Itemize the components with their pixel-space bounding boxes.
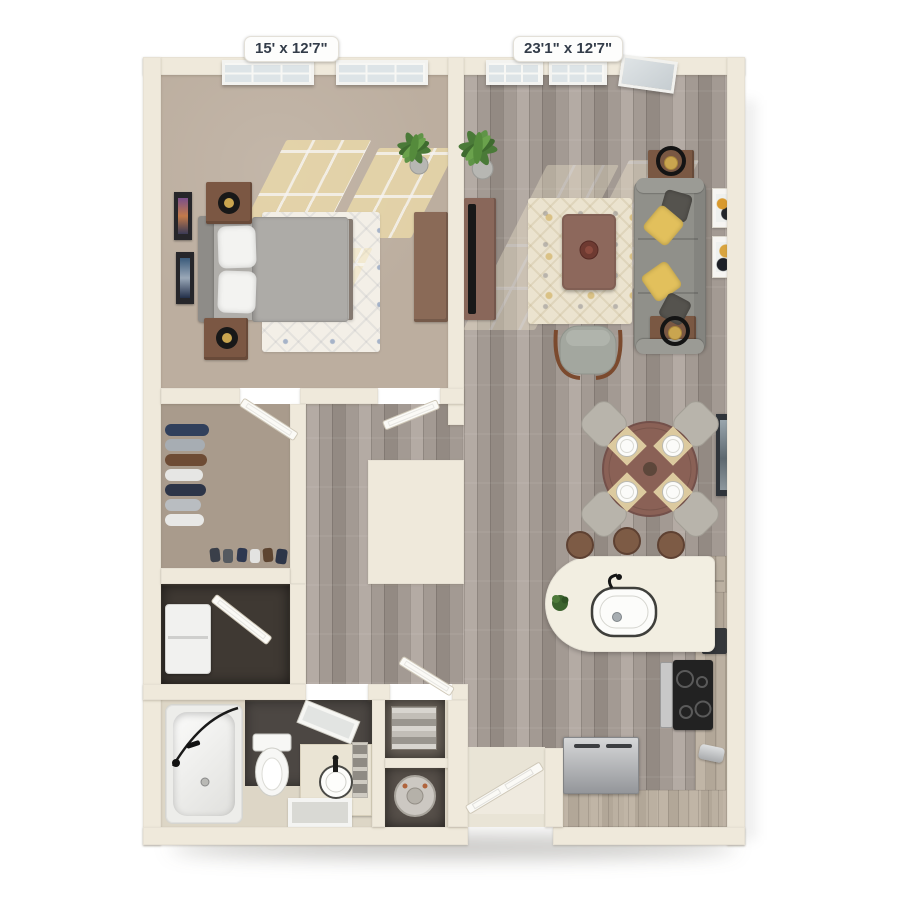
wall-bedroom-south [300, 388, 378, 404]
wall-bathroom-north [368, 684, 390, 700]
plan-side-shadow [744, 100, 760, 840]
floor-plan-stage: 15' x 12'7" 23'1" x 12'7" [0, 0, 900, 900]
wall-bathroom-north [143, 684, 306, 700]
washer-door-seam [168, 636, 208, 639]
hanging-clothes [165, 424, 209, 436]
coffee-table [562, 214, 616, 290]
washer-dryer [165, 604, 211, 674]
wall-closet-east [290, 404, 306, 584]
tv [468, 204, 476, 314]
wall-bedroom-south [440, 388, 464, 404]
refrigerator-handle [574, 744, 600, 748]
wall-left [143, 57, 161, 845]
shoes [236, 548, 247, 563]
shoes [250, 549, 260, 563]
wall-bottom [143, 827, 468, 845]
bedroom-window [222, 60, 314, 85]
linen-shelf-towels [391, 706, 437, 750]
living-dimension-label: 23'1" x 12'7" [513, 36, 623, 62]
entry-floor [468, 747, 545, 827]
island-counter [545, 556, 715, 652]
heater-closet-interior [385, 766, 445, 827]
wall-bedroom-south [161, 388, 240, 404]
towel-shelf [352, 742, 368, 798]
wall-closets-divider [385, 758, 452, 768]
wall-entry-west [448, 700, 468, 827]
shoes [223, 549, 233, 563]
wall-laundry-east [290, 584, 306, 684]
living-window [549, 60, 607, 85]
dresser [414, 212, 448, 322]
bed-pillow [217, 225, 256, 268]
wall-entry-east-stub [545, 748, 563, 827]
wall-art-canvas [180, 258, 190, 298]
wall-bathroom-north [452, 684, 468, 700]
wall-bedroom-living-divider [448, 57, 464, 425]
living-window [486, 60, 543, 85]
hanging-clothes [165, 469, 203, 481]
bath-mat [288, 798, 352, 827]
hanging-clothes [165, 499, 201, 511]
wall-bottom [553, 827, 745, 845]
shoes [209, 548, 220, 563]
shoes [262, 548, 273, 563]
range-oven-front [660, 662, 673, 728]
bedroom-dimension-label: 15' x 12'7" [244, 36, 339, 62]
nightstand [206, 182, 252, 224]
wall-right [727, 57, 745, 845]
range-cooktop [673, 660, 713, 730]
hanging-clothes [165, 439, 205, 451]
bed-headboard [198, 216, 214, 322]
hanging-clothes [165, 454, 207, 466]
sofa-arm [636, 339, 704, 354]
hanging-clothes [165, 484, 206, 496]
wall-closet-south [161, 568, 290, 584]
bedroom-window [336, 60, 428, 85]
bed-duvet [252, 217, 348, 322]
wall-utility-block [368, 460, 464, 584]
kitchen-counter-bottom [558, 790, 727, 827]
shoes [275, 548, 288, 564]
refrigerator-handle [606, 744, 632, 748]
wall-closets-west [372, 700, 385, 827]
hanging-clothes [165, 514, 204, 526]
bed-pillow [217, 270, 256, 313]
wall-art-canvas [178, 198, 188, 234]
bathtub-basin [173, 712, 235, 816]
nightstand [204, 318, 248, 360]
